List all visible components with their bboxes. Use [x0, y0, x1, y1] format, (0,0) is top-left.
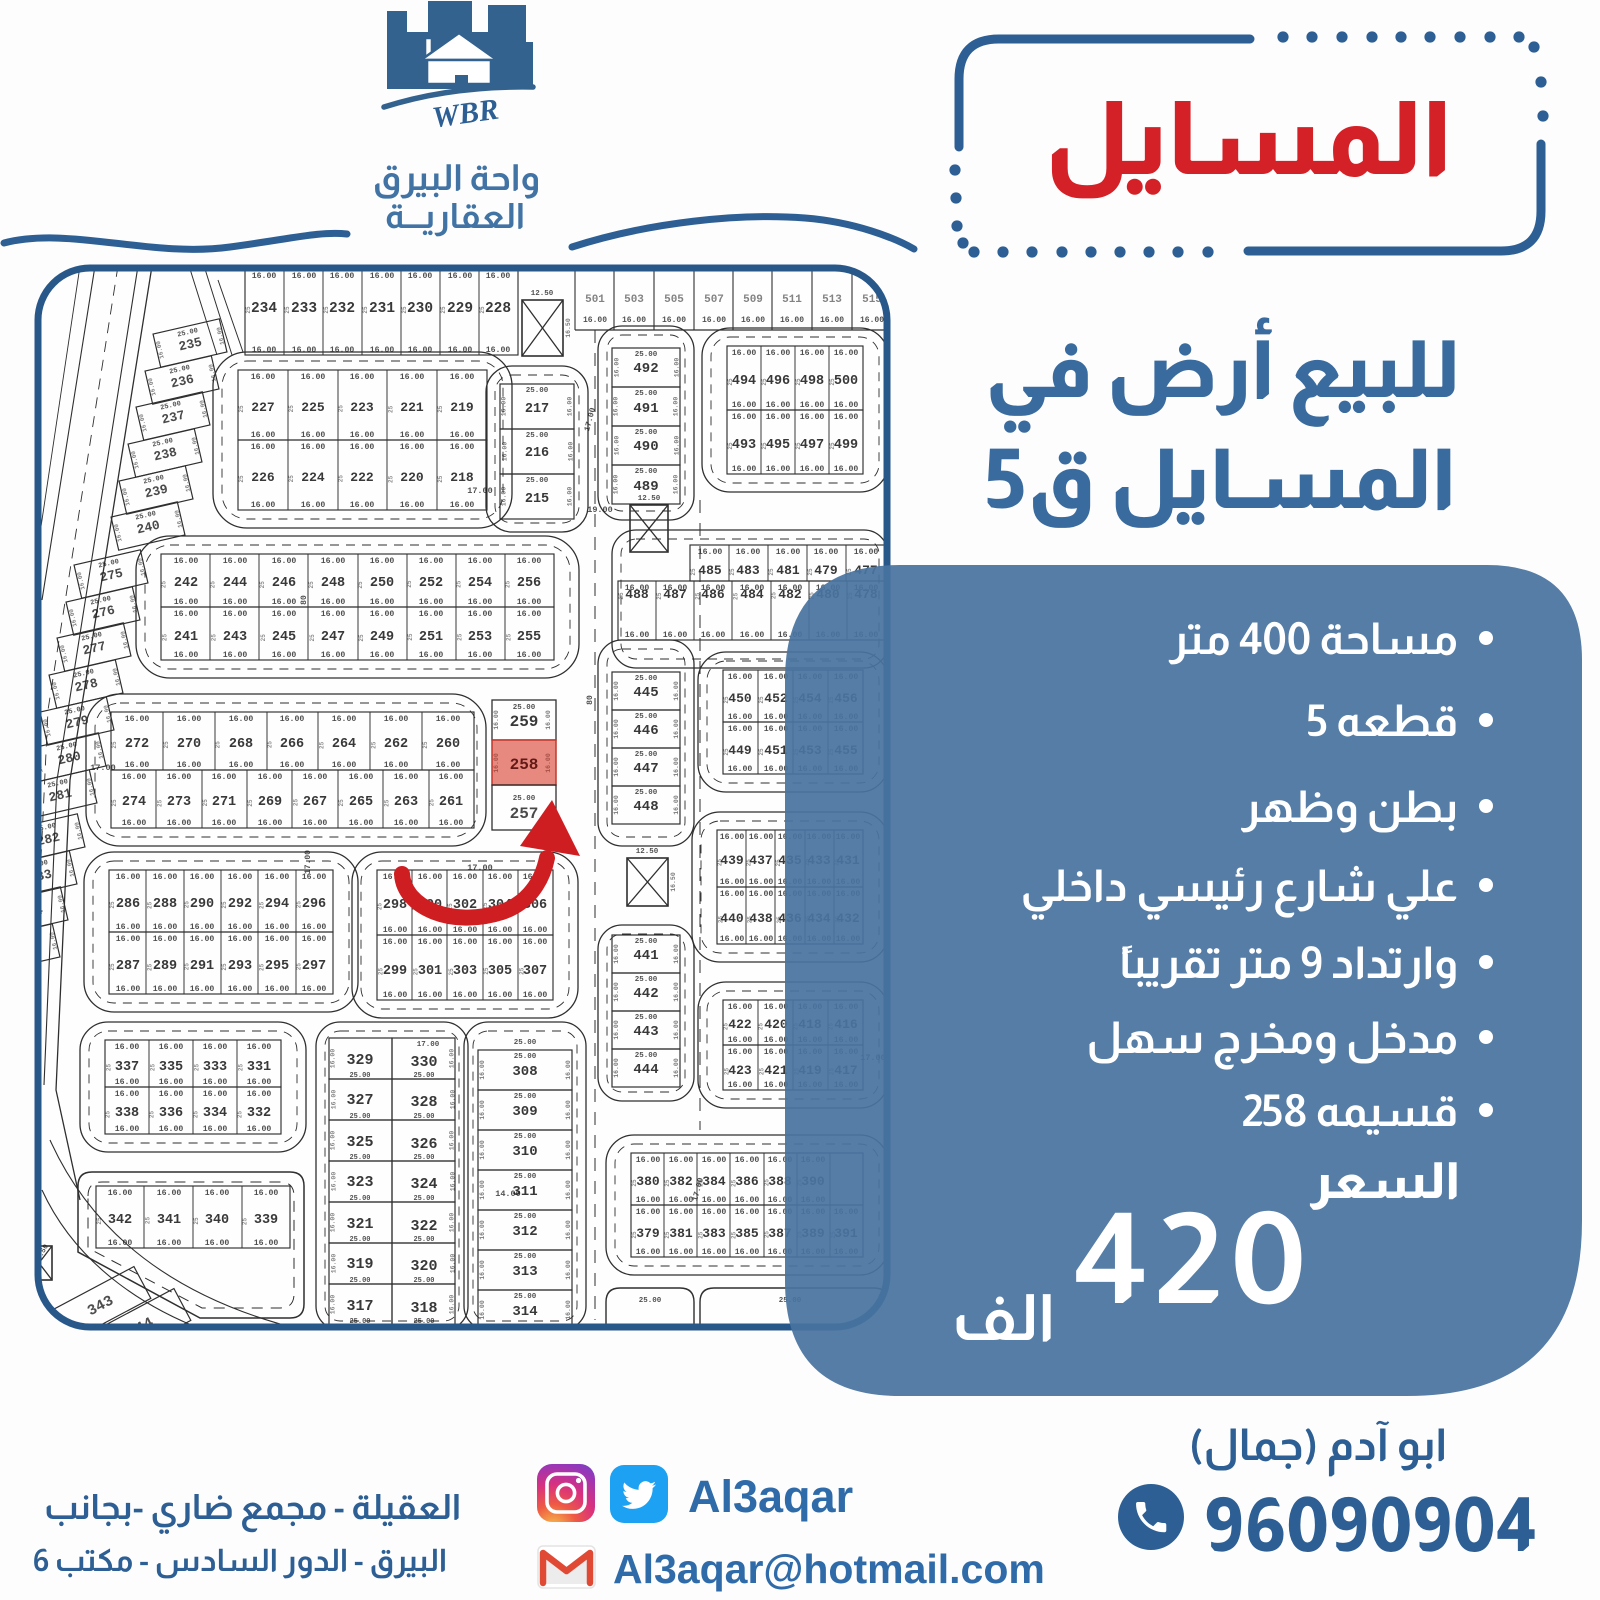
svg-text:16.00: 16.00	[450, 431, 475, 440]
svg-text:500: 500	[834, 374, 858, 389]
svg-text:16.00: 16.00	[167, 773, 192, 782]
svg-text:16.00: 16.00	[383, 991, 408, 1000]
svg-text:16.00: 16.00	[419, 651, 444, 660]
svg-text:25: 25	[690, 568, 697, 576]
svg-text:16.00: 16.00	[701, 584, 726, 593]
svg-text:16.00: 16.00	[400, 443, 425, 452]
svg-text:16.00: 16.00	[190, 985, 215, 994]
svg-text:25: 25	[723, 1023, 730, 1031]
svg-text:293: 293	[228, 959, 252, 974]
svg-text:16.00: 16.00	[122, 819, 147, 828]
svg-text:16.00: 16.00	[115, 1078, 140, 1087]
svg-text:16.00: 16.00	[728, 1048, 753, 1057]
svg-text:447: 447	[633, 761, 658, 777]
svg-text:25: 25	[247, 799, 254, 807]
svg-text:25: 25	[323, 306, 330, 314]
svg-text:265: 265	[349, 795, 373, 810]
svg-text:25.00: 25.00	[513, 704, 536, 712]
svg-text:16.00: 16.00	[567, 487, 574, 507]
svg-text:16.00: 16.00	[229, 715, 254, 724]
svg-text:227: 227	[251, 400, 274, 415]
svg-text:513: 513	[822, 294, 842, 306]
svg-text:263: 263	[394, 795, 418, 810]
svg-text:25: 25	[795, 442, 802, 450]
svg-text:273: 273	[167, 795, 191, 810]
svg-text:16.00: 16.00	[177, 715, 202, 724]
svg-text:314: 314	[512, 1304, 537, 1320]
svg-text:16.00: 16.00	[301, 373, 326, 382]
svg-text:16.00: 16.00	[453, 938, 478, 947]
svg-text:439: 439	[720, 853, 744, 868]
svg-text:16.00: 16.00	[673, 397, 680, 417]
svg-text:270: 270	[177, 737, 201, 752]
svg-text:25: 25	[730, 1231, 737, 1239]
svg-text:25: 25	[437, 475, 444, 483]
svg-text:234: 234	[251, 301, 277, 317]
svg-text:16.00: 16.00	[720, 878, 745, 887]
svg-text:215: 215	[525, 492, 549, 507]
svg-text:386: 386	[735, 1174, 759, 1189]
svg-text:493: 493	[732, 438, 756, 453]
svg-text:16.00: 16.00	[302, 985, 327, 994]
svg-text:16.00: 16.00	[177, 761, 202, 770]
svg-text:25.00: 25.00	[514, 1173, 537, 1181]
svg-text:16.00: 16.00	[673, 795, 680, 815]
svg-text:16.00: 16.00	[330, 1131, 337, 1151]
svg-text:16.00: 16.00	[223, 610, 248, 619]
svg-text:16.00: 16.00	[449, 1049, 456, 1069]
svg-text:16.00: 16.00	[370, 346, 395, 355]
svg-text:16.00: 16.00	[167, 819, 192, 828]
svg-text:250: 250	[370, 576, 394, 591]
svg-text:25: 25	[296, 901, 303, 909]
svg-text:25: 25	[193, 1217, 200, 1225]
svg-text:25: 25	[387, 475, 394, 483]
svg-text:16.00: 16.00	[764, 1081, 789, 1090]
svg-text:25: 25	[288, 405, 295, 413]
svg-text:16.00: 16.00	[247, 1078, 272, 1087]
svg-text:16.00: 16.00	[702, 1196, 727, 1205]
svg-text:16.00: 16.00	[479, 1140, 486, 1160]
svg-text:226: 226	[251, 470, 275, 485]
svg-text:16.00: 16.00	[251, 443, 276, 452]
svg-text:25: 25	[111, 741, 118, 749]
svg-text:16.00: 16.00	[502, 442, 509, 462]
svg-text:479: 479	[814, 563, 838, 578]
svg-text:16.00: 16.00	[493, 710, 500, 730]
svg-text:298: 298	[383, 898, 407, 913]
svg-text:16.00: 16.00	[453, 991, 478, 1000]
svg-text:16.00: 16.00	[741, 316, 765, 325]
svg-text:16.00: 16.00	[116, 923, 141, 932]
svg-text:16.00: 16.00	[400, 373, 425, 382]
svg-text:232: 232	[329, 301, 355, 317]
svg-text:16.00: 16.00	[350, 373, 375, 382]
svg-text:16.00: 16.00	[332, 761, 357, 770]
svg-text:330: 330	[410, 1054, 437, 1071]
svg-text:16.00: 16.00	[370, 557, 395, 566]
svg-text:16.00: 16.00	[330, 1295, 337, 1315]
svg-text:16.00: 16.00	[523, 938, 548, 947]
svg-text:16.00: 16.00	[272, 651, 297, 660]
svg-text:25: 25	[258, 963, 265, 971]
svg-text:16.00: 16.00	[732, 465, 757, 474]
svg-text:16.00: 16.00	[265, 935, 290, 944]
svg-text:25: 25	[210, 581, 217, 589]
svg-text:16.00: 16.00	[159, 1125, 184, 1134]
svg-text:244: 244	[223, 576, 247, 591]
svg-text:16.00: 16.00	[800, 413, 825, 422]
svg-text:25: 25	[723, 748, 730, 756]
svg-text:322: 322	[410, 1218, 437, 1235]
svg-text:225: 225	[301, 400, 325, 415]
svg-text:253: 253	[468, 630, 492, 645]
svg-text:16.00: 16.00	[701, 631, 726, 640]
svg-text:260: 260	[436, 737, 460, 752]
svg-text:450: 450	[728, 691, 752, 706]
svg-text:219: 219	[450, 400, 474, 415]
svg-text:16.00: 16.00	[728, 1036, 753, 1045]
svg-text:25: 25	[758, 748, 765, 756]
svg-text:16.00: 16.00	[674, 358, 681, 378]
svg-text:25: 25	[795, 378, 802, 386]
svg-text:25: 25	[437, 405, 444, 413]
svg-text:16.00: 16.00	[450, 1172, 457, 1192]
svg-text:25: 25	[807, 568, 814, 576]
svg-text:25: 25	[193, 1111, 200, 1119]
svg-text:16.00: 16.00	[350, 501, 375, 510]
svg-text:25: 25	[338, 475, 345, 483]
svg-text:16.00: 16.00	[673, 1020, 680, 1040]
svg-text:16.00: 16.00	[228, 873, 253, 882]
svg-text:313: 313	[512, 1264, 537, 1280]
svg-text:16.00: 16.00	[732, 401, 757, 410]
svg-text:25: 25	[758, 1023, 765, 1031]
svg-text:25: 25	[238, 475, 245, 483]
svg-text:16.00: 16.00	[419, 557, 444, 566]
svg-text:16.00: 16.00	[728, 1003, 753, 1012]
svg-text:16.00: 16.00	[766, 401, 791, 410]
svg-text:269: 269	[258, 795, 282, 810]
svg-text:16.00: 16.00	[567, 397, 574, 417]
svg-text:25: 25	[109, 963, 116, 971]
svg-text:16.00: 16.00	[728, 673, 753, 682]
svg-text:16.00: 16.00	[613, 475, 620, 495]
svg-text:25: 25	[284, 306, 291, 314]
svg-text:16.00: 16.00	[764, 713, 789, 722]
svg-text:25: 25	[296, 963, 303, 971]
svg-text:496: 496	[766, 374, 790, 389]
svg-text:25.00: 25.00	[635, 938, 658, 946]
svg-text:25.00: 25.00	[635, 976, 658, 984]
svg-text:16.00: 16.00	[517, 598, 542, 607]
svg-text:25.00: 25.00	[635, 713, 658, 721]
svg-text:80: 80	[300, 595, 309, 605]
svg-text:249: 249	[370, 630, 394, 645]
svg-text:16.00: 16.00	[674, 436, 681, 456]
svg-text:334: 334	[203, 1106, 227, 1121]
svg-text:16.00: 16.00	[468, 598, 493, 607]
svg-text:16.00: 16.00	[479, 1100, 486, 1120]
svg-text:318: 318	[410, 1300, 437, 1317]
svg-text:16.00: 16.00	[764, 725, 789, 734]
svg-text:25: 25	[761, 442, 768, 450]
svg-text:25.00: 25.00	[514, 1133, 537, 1141]
svg-text:16.00: 16.00	[157, 1239, 182, 1248]
svg-text:233: 233	[291, 301, 317, 317]
svg-text:16.00: 16.00	[766, 349, 791, 358]
svg-text:16.00: 16.00	[331, 1172, 338, 1192]
svg-text:310: 310	[512, 1144, 537, 1160]
svg-text:16.00: 16.00	[720, 833, 745, 842]
svg-text:16.00: 16.00	[740, 584, 765, 593]
svg-text:16.00: 16.00	[735, 1208, 760, 1217]
svg-text:25: 25	[656, 592, 663, 600]
svg-text:16.00: 16.00	[622, 316, 646, 325]
svg-text:16.00: 16.00	[115, 1090, 140, 1099]
svg-text:25: 25	[764, 1231, 771, 1239]
svg-text:422: 422	[728, 1017, 752, 1032]
svg-text:16.00: 16.00	[272, 610, 297, 619]
svg-text:16.00: 16.00	[636, 1156, 661, 1165]
svg-text:16.00: 16.00	[749, 833, 774, 842]
svg-text:17.00: 17.00	[90, 763, 116, 773]
svg-text:25: 25	[194, 1064, 201, 1072]
svg-text:25: 25	[759, 1068, 766, 1076]
svg-text:25.00: 25.00	[635, 1014, 658, 1022]
svg-text:16.00: 16.00	[252, 346, 277, 355]
svg-text:14.00: 14.00	[495, 1189, 521, 1199]
svg-text:25: 25	[109, 901, 116, 909]
svg-text:16.00: 16.00	[115, 1125, 140, 1134]
svg-text:16.00: 16.00	[565, 1100, 572, 1120]
svg-text:16.00: 16.00	[468, 610, 493, 619]
svg-text:274: 274	[122, 795, 146, 810]
svg-text:16.00: 16.00	[125, 715, 150, 724]
svg-text:25: 25	[429, 799, 436, 807]
svg-text:16.00: 16.00	[153, 985, 178, 994]
svg-text:16.00: 16.00	[766, 413, 791, 422]
svg-text:25.00: 25.00	[635, 429, 658, 437]
svg-text:25: 25	[829, 442, 836, 450]
svg-text:25.00: 25.00	[635, 751, 658, 759]
svg-text:25: 25	[237, 1111, 244, 1119]
svg-text:16.00: 16.00	[400, 431, 425, 440]
svg-text:446: 446	[633, 723, 658, 739]
svg-text:16.00: 16.00	[212, 819, 237, 828]
svg-text:25.00: 25.00	[639, 1297, 662, 1305]
svg-text:16.00: 16.00	[778, 584, 803, 593]
svg-text:25: 25	[221, 963, 228, 971]
svg-text:317: 317	[346, 1298, 373, 1315]
svg-text:25: 25	[455, 580, 462, 588]
svg-text:16.00: 16.00	[157, 1189, 182, 1198]
svg-text:17.00: 17.00	[304, 850, 313, 874]
svg-text:16.00: 16.00	[613, 1058, 620, 1078]
svg-text:16.00: 16.00	[565, 1300, 572, 1320]
svg-text:259: 259	[510, 713, 539, 731]
svg-text:16.00: 16.00	[613, 757, 620, 777]
svg-text:16.00: 16.00	[673, 475, 680, 495]
svg-text:16.00: 16.00	[834, 413, 859, 422]
svg-text:Al3aqar@hotmail.com: Al3aqar@hotmail.com	[613, 1546, 1045, 1592]
svg-text:16.00: 16.00	[258, 773, 283, 782]
svg-text:16.00: 16.00	[673, 944, 680, 964]
svg-text:16.00: 16.00	[228, 985, 253, 994]
svg-text:222: 222	[350, 470, 374, 485]
svg-text:242: 242	[174, 576, 198, 591]
svg-text:16.00: 16.00	[565, 1260, 572, 1280]
svg-text:16.00: 16.00	[212, 773, 237, 782]
svg-text:16.00: 16.00	[223, 651, 248, 660]
svg-text:16.00: 16.00	[350, 443, 375, 452]
svg-text:25: 25	[184, 901, 191, 909]
svg-text:12.50: 12.50	[638, 495, 661, 503]
svg-text:16.00: 16.00	[418, 938, 443, 947]
svg-text:16.00: 16.00	[740, 631, 765, 640]
svg-text:25: 25	[440, 306, 447, 314]
svg-text:16.00: 16.00	[728, 1081, 753, 1090]
svg-text:16.00: 16.00	[251, 431, 276, 440]
svg-text:25: 25	[238, 1064, 245, 1072]
svg-text:16.00: 16.00	[349, 819, 374, 828]
svg-text:16.00: 16.00	[728, 765, 753, 774]
svg-text:25: 25	[631, 1231, 638, 1239]
svg-text:449: 449	[728, 743, 752, 758]
svg-text:16.00: 16.00	[523, 991, 548, 1000]
svg-text:25: 25	[259, 581, 266, 589]
svg-text:16.00: 16.00	[728, 713, 753, 722]
svg-text:16.00: 16.00	[301, 443, 326, 452]
svg-text:294: 294	[265, 897, 289, 912]
svg-text:16.00: 16.00	[501, 487, 508, 507]
svg-text:16.00: 16.00	[488, 991, 513, 1000]
svg-text:309: 309	[512, 1104, 537, 1120]
svg-text:423: 423	[728, 1063, 752, 1078]
svg-text:452: 452	[764, 691, 788, 706]
svg-text:16.00: 16.00	[735, 1248, 760, 1257]
svg-text:254: 254	[468, 576, 492, 591]
svg-text:16.50: 16.50	[670, 872, 677, 892]
svg-text:267: 267	[303, 795, 327, 810]
svg-text:503: 503	[624, 294, 644, 306]
svg-text:16.00: 16.00	[254, 1239, 279, 1248]
svg-text:333: 333	[203, 1060, 227, 1075]
svg-text:16.00: 16.00	[673, 681, 680, 701]
svg-text:323: 323	[346, 1174, 373, 1191]
svg-text:25.00: 25.00	[635, 1052, 658, 1060]
svg-text:341: 341	[157, 1213, 181, 1228]
svg-text:25: 25	[162, 634, 169, 642]
svg-text:335: 335	[159, 1060, 183, 1075]
svg-text:16.00: 16.00	[479, 1060, 486, 1080]
svg-text:25.00: 25.00	[635, 351, 658, 359]
svg-text:16.00: 16.00	[517, 557, 542, 566]
svg-text:25: 25	[293, 799, 300, 807]
svg-text:16.00: 16.00	[419, 610, 444, 619]
svg-text:12.50: 12.50	[636, 848, 659, 856]
svg-text:384: 384	[702, 1174, 726, 1189]
svg-text:16.00: 16.00	[673, 757, 680, 777]
svg-text:217: 217	[525, 402, 549, 417]
svg-text:16.00: 16.00	[251, 501, 276, 510]
svg-text:16.00: 16.00	[479, 1180, 486, 1200]
svg-text:421: 421	[764, 1063, 788, 1078]
svg-text:25: 25	[362, 306, 369, 314]
svg-text:16.00: 16.00	[800, 401, 825, 410]
svg-text:16.00: 16.00	[370, 598, 395, 607]
svg-text:12.50: 12.50	[531, 290, 554, 298]
svg-text:25.00: 25.00	[526, 387, 549, 395]
svg-text:16.00: 16.00	[625, 584, 650, 593]
svg-text:16.00: 16.00	[613, 1020, 620, 1040]
svg-text:16.00: 16.00	[766, 465, 791, 474]
svg-text:16.00: 16.00	[448, 346, 473, 355]
svg-text:16.00: 16.00	[479, 1220, 486, 1240]
svg-text:25: 25	[308, 581, 315, 589]
svg-text:16.00: 16.00	[321, 557, 346, 566]
svg-text:16.00: 16.00	[764, 1048, 789, 1057]
svg-text:339: 339	[254, 1213, 278, 1228]
svg-text:16.00: 16.00	[205, 1239, 230, 1248]
svg-text:16.00: 16.00	[247, 1043, 272, 1052]
svg-text:342: 342	[108, 1213, 132, 1228]
svg-text:305: 305	[488, 964, 512, 979]
svg-text:252: 252	[419, 576, 443, 591]
svg-text:16.00: 16.00	[122, 773, 147, 782]
svg-text:16.00: 16.00	[265, 923, 290, 932]
svg-text:16.00: 16.00	[439, 773, 464, 782]
svg-text:16.00: 16.00	[272, 557, 297, 566]
svg-text:271: 271	[212, 795, 236, 810]
svg-text:223: 223	[350, 400, 374, 415]
svg-text:25: 25	[145, 1217, 152, 1225]
svg-text:25: 25	[146, 901, 153, 909]
svg-text:16.00: 16.00	[190, 873, 215, 882]
svg-text:16.00: 16.00	[408, 272, 433, 281]
svg-text:289: 289	[153, 959, 177, 974]
svg-text:25: 25	[258, 901, 265, 909]
svg-text:25: 25	[479, 306, 486, 314]
svg-text:16.00: 16.00	[370, 610, 395, 619]
svg-text:16.00: 16.00	[229, 761, 254, 770]
svg-text:16.00: 16.00	[517, 610, 542, 619]
svg-text:16.00: 16.00	[223, 598, 248, 607]
svg-text:16.00: 16.00	[258, 819, 283, 828]
svg-text:16.00: 16.00	[764, 673, 789, 682]
svg-text:246: 246	[272, 576, 296, 591]
svg-text:380: 380	[636, 1174, 660, 1189]
svg-text:16.00: 16.00	[834, 401, 859, 410]
svg-text:25: 25	[318, 741, 325, 749]
svg-text:16.00: 16.00	[303, 773, 328, 782]
svg-text:16.00: 16.00	[613, 681, 620, 701]
svg-text:16.00: 16.00	[247, 1090, 272, 1099]
svg-text:25.00: 25.00	[635, 390, 658, 398]
svg-text:268: 268	[229, 737, 253, 752]
svg-text:448: 448	[633, 799, 658, 815]
svg-text:16.00: 16.00	[331, 1090, 338, 1110]
svg-text:16.00: 16.00	[302, 935, 327, 944]
svg-text:251: 251	[419, 630, 443, 645]
svg-text:16.00: 16.00	[450, 501, 475, 510]
svg-text:25: 25	[211, 634, 218, 642]
svg-text:16.00: 16.00	[749, 878, 774, 887]
svg-text:16.00: 16.00	[331, 1254, 338, 1274]
svg-text:16.00: 16.00	[669, 1248, 694, 1257]
svg-text:444: 444	[633, 1062, 658, 1078]
svg-text:16.00: 16.00	[174, 651, 199, 660]
